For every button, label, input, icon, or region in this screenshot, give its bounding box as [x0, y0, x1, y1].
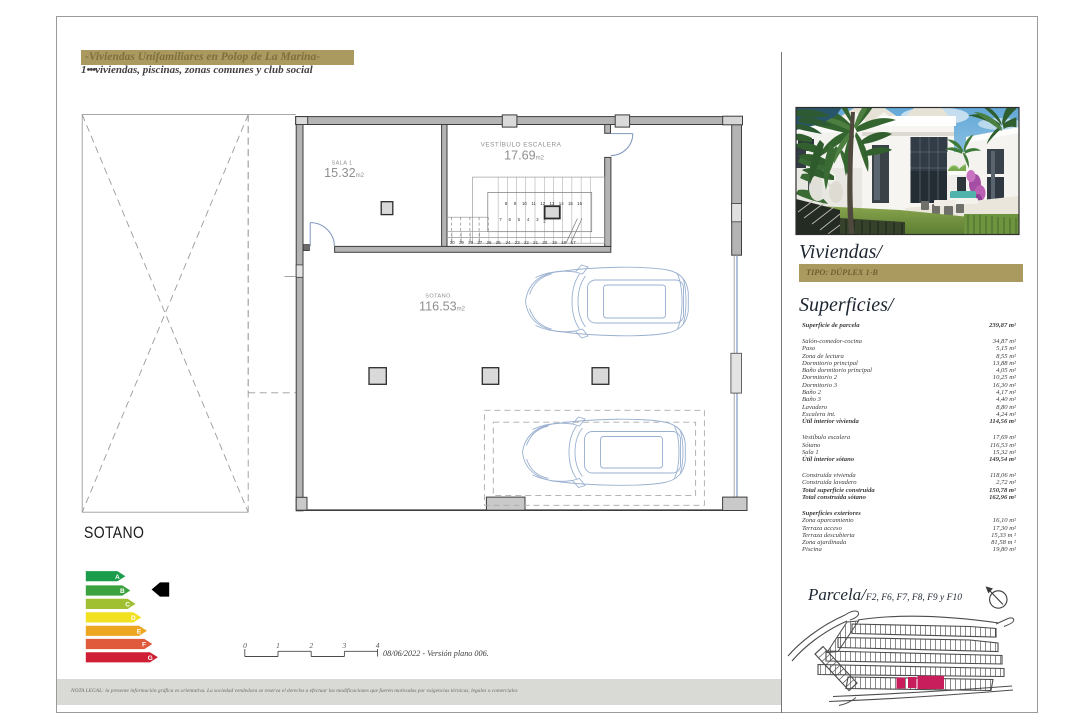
svg-text:20: 20	[542, 240, 547, 245]
svg-text:19: 19	[552, 240, 557, 245]
svg-text:C: C	[125, 602, 130, 609]
svg-text:12: 12	[540, 201, 545, 206]
svg-text:0: 0	[243, 641, 247, 650]
svg-text:F: F	[142, 642, 146, 649]
svg-text:30: 30	[450, 240, 455, 245]
svg-text:G: G	[148, 655, 153, 662]
svg-text:10: 10	[522, 201, 527, 206]
svg-text:16: 16	[577, 201, 582, 206]
svg-text:13: 13	[550, 201, 555, 206]
svg-text:15.32m2: 15.32m2	[324, 166, 365, 180]
svg-text:B: B	[120, 588, 125, 595]
svg-text:18: 18	[561, 240, 566, 245]
svg-text:22: 22	[524, 240, 529, 245]
svg-text:17.69m2: 17.69m2	[504, 149, 545, 163]
svg-text:E: E	[137, 628, 142, 635]
svg-text:VESTÍBULO ESCALERA: VESTÍBULO ESCALERA	[481, 140, 562, 149]
svg-text:4: 4	[376, 641, 380, 650]
svg-text:23: 23	[515, 240, 520, 245]
svg-text:29: 29	[459, 240, 464, 245]
svg-text:11: 11	[531, 201, 536, 206]
svg-text:15: 15	[568, 201, 573, 206]
svg-text:1: 1	[276, 641, 280, 650]
svg-text:27: 27	[477, 240, 482, 245]
svg-text:26: 26	[487, 240, 492, 245]
svg-text:2: 2	[309, 641, 313, 650]
svg-text:D: D	[131, 615, 136, 622]
svg-text:A: A	[115, 574, 120, 581]
svg-text:3: 3	[342, 641, 347, 650]
svg-text:28: 28	[468, 240, 473, 245]
svg-text:24: 24	[506, 240, 511, 245]
svg-text:116.53m2: 116.53m2	[419, 300, 466, 314]
svg-text:21: 21	[533, 240, 538, 245]
svg-text:17: 17	[571, 240, 576, 245]
svg-text:14: 14	[559, 201, 564, 206]
svg-text:25: 25	[496, 240, 501, 245]
svg-text:08/06/2022 - Versión plano 006: 08/06/2022 - Versión plano 006.	[383, 649, 489, 658]
